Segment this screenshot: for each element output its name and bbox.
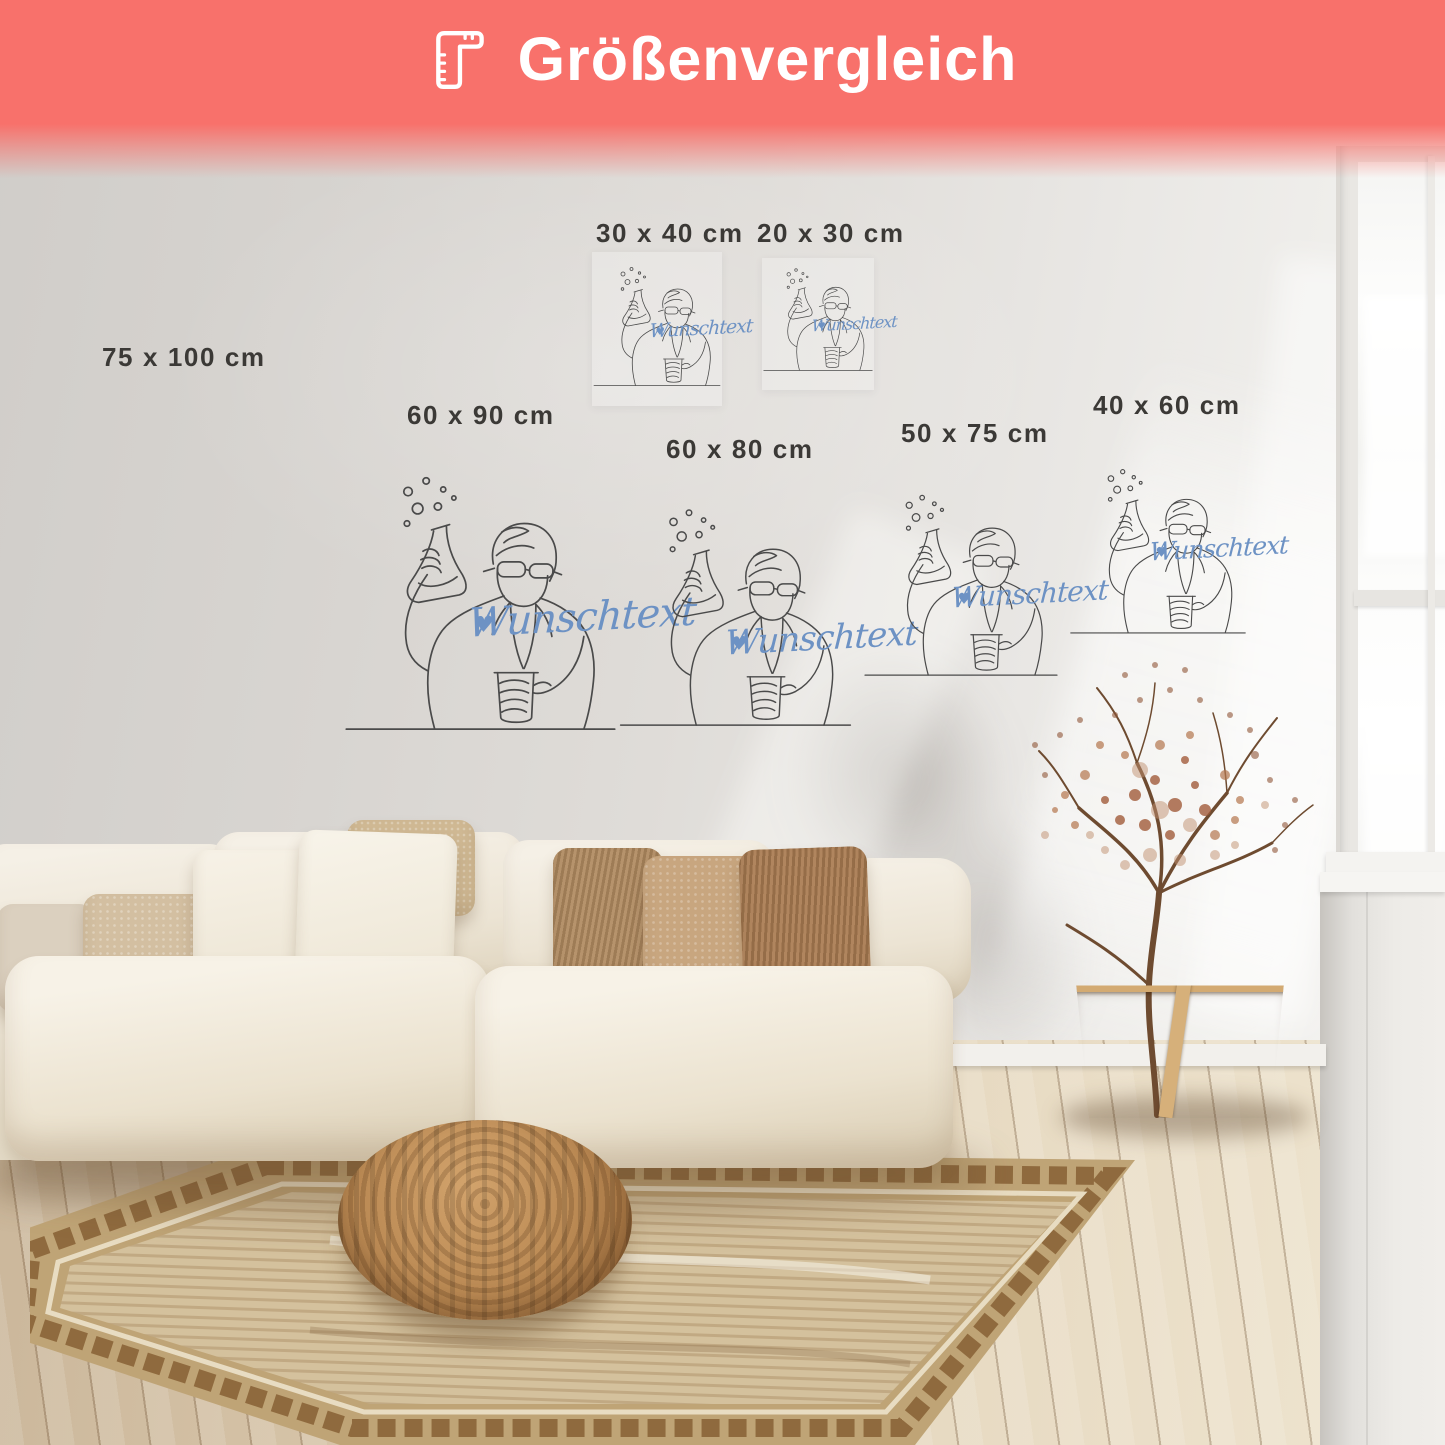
size-label-50x75: 50 x 75 cm [901,418,1049,449]
size-label-75x100: 75 x 100 cm [102,342,266,373]
header-banner: Größenvergleich [0,0,1445,180]
cabinet-seam [1366,892,1368,1445]
poster-30x40: Wunschtext♥ [592,252,722,406]
window-sill [1326,852,1445,874]
poster-60x90: Wunschtext♥ [342,466,619,751]
size-label-60x80: 60 x 80 cm [666,434,814,465]
size-label-20x30: 20 x 30 cm [757,218,905,249]
banner-title: Größenvergleich [518,24,1018,94]
poster-60x80: Wunschtext♥ [617,500,854,762]
size-label-40x60: 40 x 60 cm [1093,390,1241,421]
wicker-pouf [338,1120,632,1320]
window [1336,146,1445,886]
window-frame-edge [1428,156,1435,868]
ruler-icon [428,26,494,92]
size-label-60x90: 60 x 90 cm [407,400,555,431]
wicker-basket [1072,980,1288,1118]
basket-strap [1158,980,1191,1119]
size-label-30x40: 30 x 40 cm [596,218,744,249]
poster-20x30: Wunschtext♥ [762,258,874,390]
size-comparison-mockup: Wunschtext♥ Wunschtext♥ Wunschtext♥ Wuns… [0,0,1445,1445]
